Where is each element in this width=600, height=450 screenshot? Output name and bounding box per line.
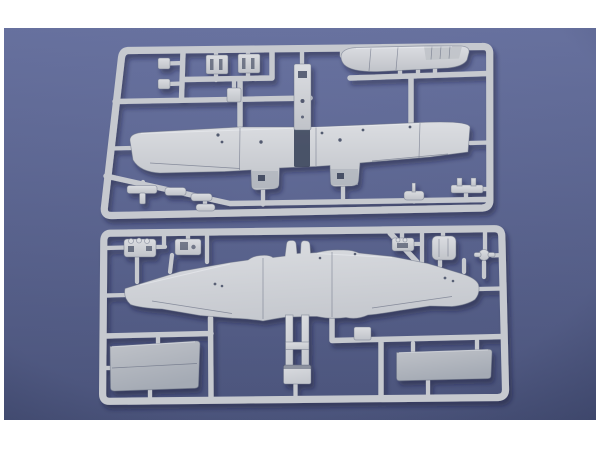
engine-bump (137, 238, 142, 243)
cockpit-floor-hole-2 (301, 116, 304, 119)
detail-part (412, 183, 416, 192)
nacelle-hole-left (258, 175, 265, 181)
tank-part (432, 236, 456, 260)
cockpit-floor-slot (298, 71, 307, 78)
hatch-panel-right-part (397, 349, 493, 381)
detail-part (165, 188, 186, 196)
engine-detail (146, 246, 152, 251)
pilot-seat-part (206, 55, 228, 74)
detail-part (457, 178, 462, 186)
engine-detail (128, 246, 134, 252)
detail-part (158, 79, 170, 89)
instrument-detail (180, 242, 188, 250)
photo (0, 0, 600, 450)
nacelle-stub-right-shade (331, 169, 358, 185)
instrument-detail (191, 245, 195, 249)
engine-bump (403, 238, 407, 242)
detail-part (471, 178, 476, 186)
cockpit-floor-hole (301, 99, 305, 103)
engine-bump (129, 239, 134, 244)
detail-part (451, 185, 483, 193)
detail-part (127, 186, 157, 194)
detail-part (196, 204, 215, 211)
detail-part (140, 193, 146, 204)
keel-strip-right (302, 315, 310, 368)
detail-part (227, 88, 241, 102)
hub-blade (488, 253, 495, 258)
detail-part (354, 327, 371, 340)
engine-bump (396, 238, 400, 242)
nacelle-hole-right (337, 173, 344, 179)
engine-detail (397, 243, 408, 248)
pilot-seat-part (238, 54, 260, 73)
keel-strip-left (286, 315, 294, 368)
fuselage-cockpit-opening (424, 46, 462, 60)
keel-foot-shade (284, 365, 312, 369)
hub-blade (474, 253, 481, 258)
engine-bump (145, 239, 150, 244)
photo-canvas (0, 0, 600, 450)
keel-rung (286, 342, 310, 350)
upper-wing-center-slot (294, 129, 310, 167)
detail-part (191, 194, 212, 202)
detail-part (158, 58, 170, 69)
